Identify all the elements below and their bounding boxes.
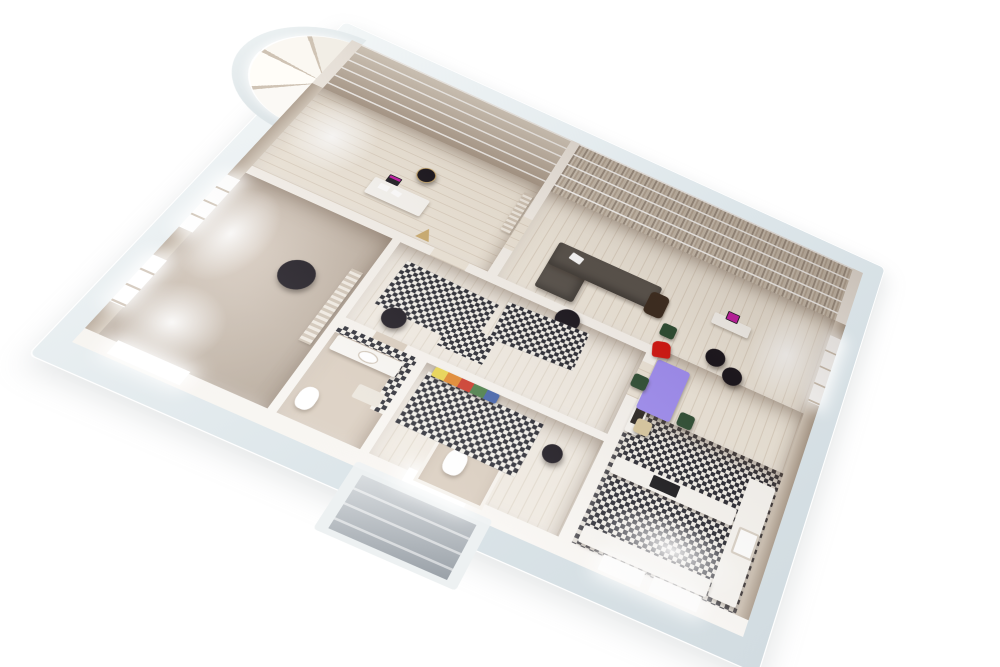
floorplan-stage <box>0 0 1000 667</box>
dining-chair-red <box>652 340 671 359</box>
apartment-plan <box>72 40 863 637</box>
